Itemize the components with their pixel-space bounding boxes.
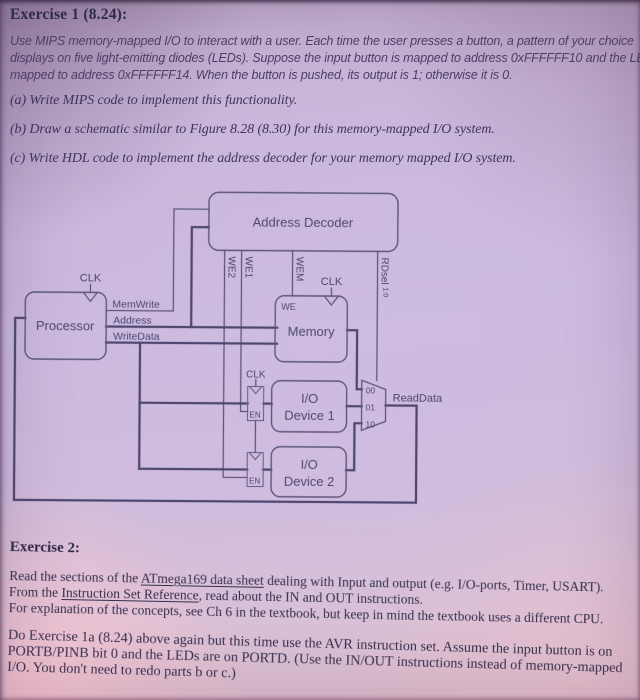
address-label: Address (113, 315, 152, 327)
mux-input-01-label: 01 (366, 402, 376, 412)
readdata-label: ReadData (393, 393, 443, 405)
wem-label: WEM (293, 257, 304, 282)
io-device1-label-line1: I/O (301, 391, 318, 406)
address-to-decoder-wire (191, 227, 209, 327)
writedata-label: WriteData (113, 331, 160, 343)
en-label-register2: EN (249, 477, 260, 486)
instruction-set-reference-link[interactable]: Instruction Set Reference (61, 585, 198, 603)
rdsel-wire (377, 251, 378, 380)
en-label-register1: EN (250, 411, 261, 420)
clock-triangle-register2 (249, 453, 261, 460)
writedata-to-register1-wire (140, 403, 248, 404)
we2-label: WE2 (225, 256, 236, 278)
text-run: Read the sections of the (9, 568, 141, 586)
rdsel-label: RDsel (378, 257, 389, 284)
mux-input-10-label: 10 (365, 419, 375, 429)
clk-label-memory: CLK (321, 276, 343, 288)
writedata-branch-wire (139, 343, 140, 469)
clk-label-registers: CLK (246, 369, 266, 380)
writedata-to-register2-wire (139, 469, 247, 470)
photographed-worksheet: Exercise 1 (8.24): Use MIPS memory-mappe… (0, 0, 640, 700)
we1-label: WE1 (242, 256, 253, 278)
io-device2-label-line1: I/O (300, 457, 317, 472)
memwrite-label: MemWrite (112, 299, 160, 311)
we2-wire (223, 250, 249, 477)
atmega169-datasheet-link[interactable]: ATmega169 data sheet (141, 571, 264, 588)
we-label-memory: WE (281, 302, 296, 312)
memory-to-mux-wire (347, 330, 362, 389)
io-device2-label-line2: Device 2 (284, 474, 335, 489)
text-run: From the (9, 584, 62, 600)
rdsel-subscript: 1:0 (381, 287, 388, 297)
io-device1-box (271, 381, 346, 433)
clock-triangle-register1 (250, 387, 262, 394)
address-decoder-label: Address Decoder (253, 215, 354, 231)
memwrite-wire (106, 209, 209, 312)
clk-label-processor: CLK (80, 272, 102, 284)
clock-triangle-processor (83, 292, 97, 301)
clock-triangle-memory (324, 296, 338, 305)
mux-input-00-label: 00 (366, 385, 376, 395)
io-device1-label-line2: Device 1 (284, 408, 335, 423)
processor-label: Processor (36, 318, 95, 333)
memory-label: Memory (288, 324, 336, 339)
device2-to-mux-wire (346, 423, 361, 470)
